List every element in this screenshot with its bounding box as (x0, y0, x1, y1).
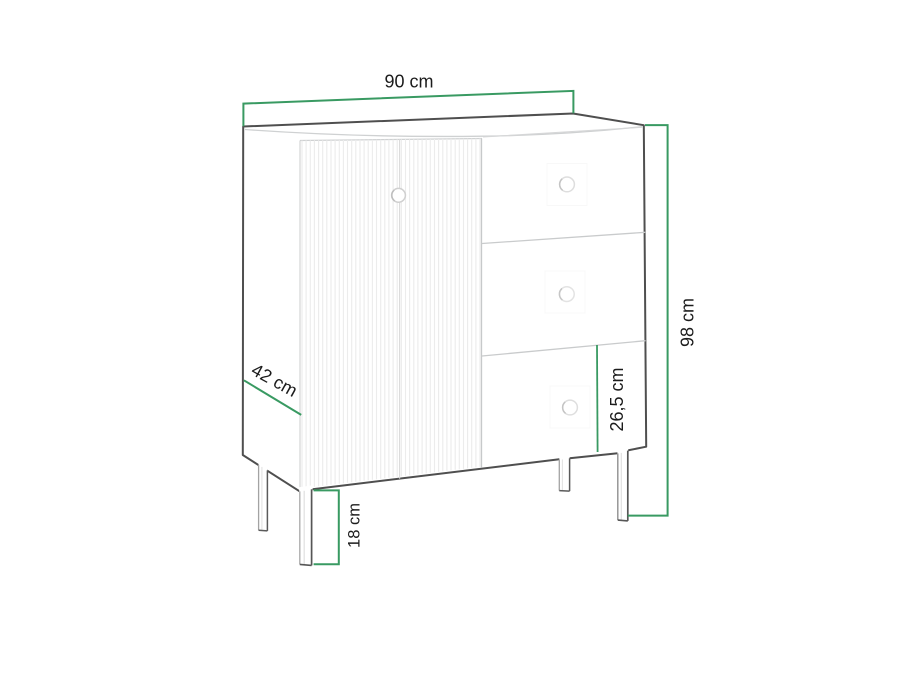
svg-text:90 cm: 90 cm (384, 72, 433, 92)
svg-text:26,5 cm: 26,5 cm (607, 367, 627, 431)
svg-text:98 cm: 98 cm (678, 298, 698, 347)
svg-text:18 cm: 18 cm (346, 503, 364, 548)
